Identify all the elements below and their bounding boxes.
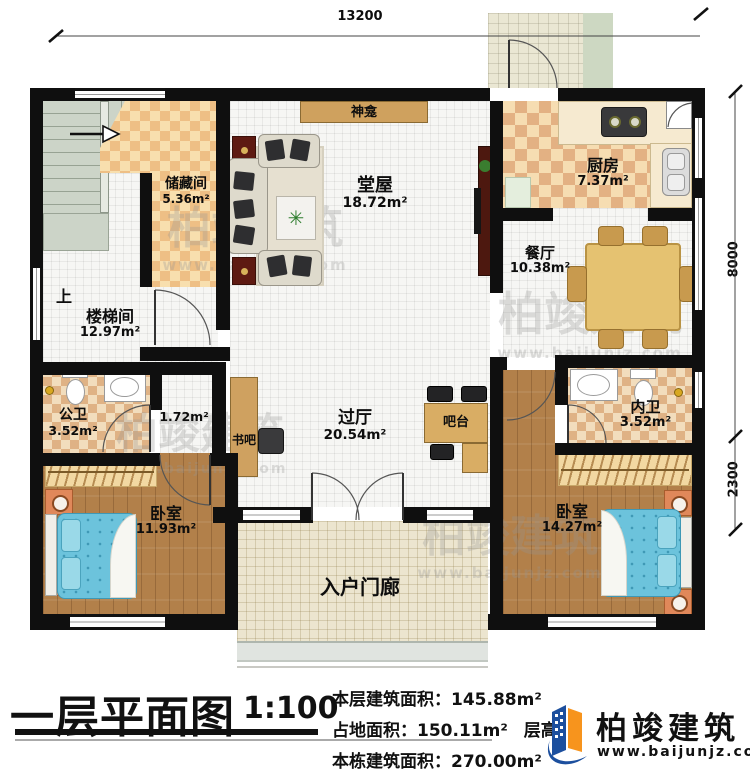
room-area: 18.72m² xyxy=(320,196,430,212)
bar-counter-return xyxy=(462,443,488,473)
pillow xyxy=(657,516,677,549)
room-area: 14.27m² xyxy=(522,521,622,536)
window-south-bedroom-right xyxy=(548,614,656,630)
logo-building-orange xyxy=(568,708,582,752)
sink-icon xyxy=(110,377,139,397)
desk-chair xyxy=(258,428,284,454)
burner-icon xyxy=(609,116,621,128)
wardrobe-rail xyxy=(561,469,689,471)
porch-steps xyxy=(237,641,488,662)
room-area: 20.54m² xyxy=(295,428,415,443)
dimension-top: 13200 xyxy=(330,10,390,25)
sofa-cushion xyxy=(292,255,312,277)
wall-bath-private-north xyxy=(555,355,692,368)
closet-area-label: 1.72m² xyxy=(154,410,214,424)
wall-bath-public-east xyxy=(150,368,162,410)
room-label-stairwell: 楼梯间 12.97m² xyxy=(40,308,180,340)
coffee-table: ✳ xyxy=(276,196,316,240)
window-east-dining xyxy=(692,198,705,310)
dim-tick xyxy=(49,30,63,42)
wall-nook-east xyxy=(212,362,226,457)
window-porch-right xyxy=(427,507,473,523)
room-area: 10.38m² xyxy=(485,262,595,277)
drawing-scale: 1:100 xyxy=(243,691,339,726)
sink-basin xyxy=(667,153,685,170)
wall-hall-south xyxy=(213,507,243,523)
pillow xyxy=(657,554,677,587)
room-name: 餐厅 xyxy=(485,245,595,262)
brand-url: www.baijunjz.com xyxy=(597,744,750,760)
pillow xyxy=(61,519,81,552)
sofa-cushion xyxy=(233,199,255,219)
wall-corridor-north-corner xyxy=(490,357,507,370)
logo-building-blue xyxy=(552,705,566,756)
drawing-title: 一层平面图 xyxy=(10,681,235,745)
bed-headboard xyxy=(680,517,692,588)
shrine-shelf: 神龛 xyxy=(300,101,428,123)
room-label-kitchen: 厨房 7.37m² xyxy=(548,157,658,189)
wardrobe xyxy=(558,452,692,486)
dining-chair xyxy=(642,226,668,246)
corner-cabinet xyxy=(666,101,692,129)
wall-bath-private-west xyxy=(555,368,568,405)
dim-tick xyxy=(729,523,742,536)
dining-chair xyxy=(642,329,668,349)
room-area: 11.93m² xyxy=(118,523,214,538)
wall-stairwell-south xyxy=(30,362,212,375)
stairs-flight xyxy=(43,101,100,213)
room-name: 内卫 xyxy=(598,399,693,416)
room-name: 堂屋 xyxy=(320,176,430,196)
kitchen-door-opening xyxy=(490,88,558,101)
room-label-bath-public: 公卫 3.52m² xyxy=(40,408,106,438)
bar-stool xyxy=(430,444,454,460)
room-name: 储藏间 xyxy=(148,177,224,193)
book-bar-label: 书吧 xyxy=(227,434,261,447)
wall-hall-south xyxy=(473,507,490,523)
info-line-3: 本栋建筑面积：270.00m² xyxy=(332,747,542,772)
dining-chair xyxy=(598,329,624,349)
burner-icon xyxy=(629,116,641,128)
wall-corridor-west xyxy=(490,370,503,630)
back-porch-green-strip xyxy=(583,13,613,88)
room-name: 厨房 xyxy=(548,157,658,175)
bar-stool xyxy=(427,386,453,402)
room-label-main-hall: 堂屋 18.72m² xyxy=(320,176,430,212)
wall-door-jamb xyxy=(403,507,427,523)
room-name: 卧室 xyxy=(522,503,622,521)
room-name: 公卫 xyxy=(40,408,106,424)
sofa-cushion xyxy=(265,139,286,161)
sofa-cushion xyxy=(289,139,310,162)
room-name: 卧室 xyxy=(118,505,214,523)
wall-stair-hall-divider xyxy=(216,101,230,330)
bar-stool xyxy=(461,386,487,402)
plant-icon: ✳ xyxy=(277,197,315,239)
window-south-bedroom-left xyxy=(70,614,165,630)
window-east-bath xyxy=(692,372,705,408)
room-label-entry-porch: 入户门廊 xyxy=(280,576,440,598)
dining-table xyxy=(585,243,681,331)
nightstand xyxy=(45,489,73,515)
info-label: 本层建筑面积： xyxy=(332,690,451,710)
info-label: 占地面积： xyxy=(332,721,417,741)
info-value: 150.11m² xyxy=(417,721,508,741)
room-label-bath-private: 内卫 3.52m² xyxy=(598,399,693,430)
pillow xyxy=(61,557,81,590)
info-value: 270.00m² xyxy=(451,752,542,772)
wall-bedroom-left-east xyxy=(225,453,238,630)
wardrobe-rail xyxy=(48,471,154,473)
stove-icon xyxy=(601,107,647,137)
wall-door-jamb xyxy=(300,507,313,523)
shower-icon xyxy=(674,388,683,397)
dim-tick xyxy=(729,85,742,98)
toilet-icon xyxy=(66,379,85,405)
room-label-dining: 餐厅 10.38m² xyxy=(485,245,595,276)
room-name: 过厅 xyxy=(295,409,415,428)
kitchen-appliance xyxy=(505,177,531,208)
window-north xyxy=(75,88,165,101)
room-label-shrine: 神龛 xyxy=(301,102,427,123)
stairs-up-label: 上 xyxy=(52,288,76,306)
room-area: 12.97m² xyxy=(40,326,180,341)
wall-storage-south xyxy=(140,347,230,361)
shower-icon xyxy=(45,386,54,395)
room-area: 3.52m² xyxy=(40,424,106,438)
title-underline-thick xyxy=(15,729,318,735)
window-east-kitchen xyxy=(692,118,705,178)
brand-logo-icon xyxy=(542,698,592,768)
info-line-2: 占地面积：150.11m²层高： xyxy=(332,716,575,741)
sofa-cushion xyxy=(233,225,256,246)
room-label-storage: 储藏间 5.36m² xyxy=(148,177,224,206)
info-value: 145.88m² xyxy=(451,690,542,710)
bar-counter-label: 吧台 xyxy=(433,416,479,431)
wall-west xyxy=(30,88,43,630)
sofa-cushion xyxy=(233,171,255,191)
wall-bath-private-south xyxy=(555,443,692,455)
sink-icon xyxy=(577,374,610,396)
sink-basin xyxy=(667,174,685,191)
wall-kitchen-south-right xyxy=(648,208,692,221)
dimension-right-lower: 2300 xyxy=(728,449,743,509)
floorplan-page: { "dimensions": { "top": "13200", "right… xyxy=(0,0,750,776)
wall-bedroom-left-north xyxy=(30,453,160,466)
wall-kitchen-south-left xyxy=(503,208,553,221)
side-table xyxy=(232,257,256,285)
dimension-right-upper: 8000 xyxy=(728,229,743,289)
room-area: 7.37m² xyxy=(548,175,658,190)
dim-tick xyxy=(729,430,742,443)
info-line-1: 本层建筑面积：145.88m² xyxy=(332,685,542,710)
toilet-tank xyxy=(630,369,656,379)
sofa-cushion xyxy=(266,255,287,278)
dim-tick xyxy=(694,8,708,20)
stairs-landing xyxy=(43,213,109,251)
info-label: 本栋建筑面积： xyxy=(332,752,451,772)
room-area: 3.52m² xyxy=(598,416,693,431)
room-label-bedroom-right: 卧室 14.27m² xyxy=(522,503,622,535)
room-label-bedroom-left: 卧室 11.93m² xyxy=(118,505,214,537)
kitchen-sink-icon xyxy=(662,148,690,196)
brand-name: 柏竣建筑 xyxy=(596,703,740,748)
porch-step-edge xyxy=(237,666,488,668)
tv-icon xyxy=(474,188,481,234)
floor-corridor xyxy=(503,370,555,627)
room-name: 楼梯间 xyxy=(40,308,180,326)
dining-chair xyxy=(598,226,624,246)
bed-headboard xyxy=(45,514,57,596)
room-area: 5.36m² xyxy=(148,193,224,206)
room-label-hallway: 过厅 20.54m² xyxy=(295,409,415,443)
window-porch-left xyxy=(243,507,300,523)
